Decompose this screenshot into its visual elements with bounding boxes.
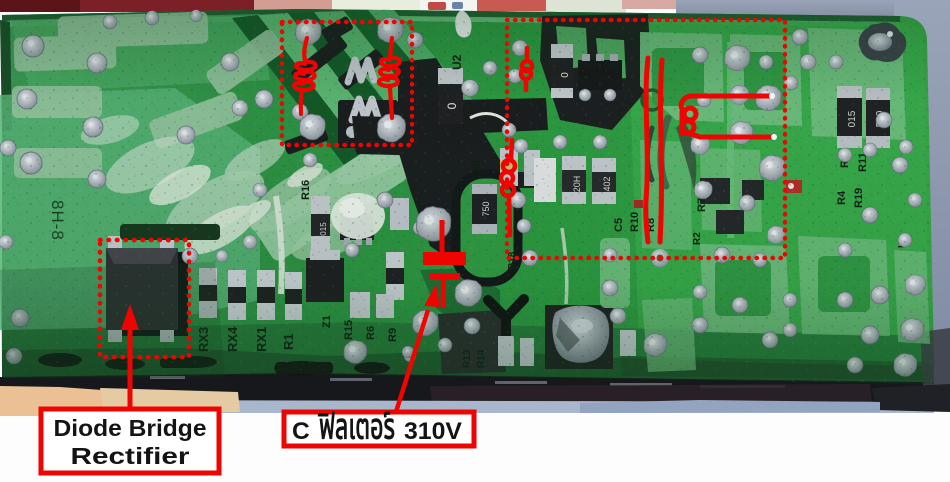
svg-text:Diode Bridge: Diode Bridge (54, 415, 207, 441)
svg-text:C: C (292, 418, 310, 445)
svg-text:310V: 310V (404, 418, 463, 445)
svg-text:Rectifier: Rectifier (71, 443, 190, 469)
